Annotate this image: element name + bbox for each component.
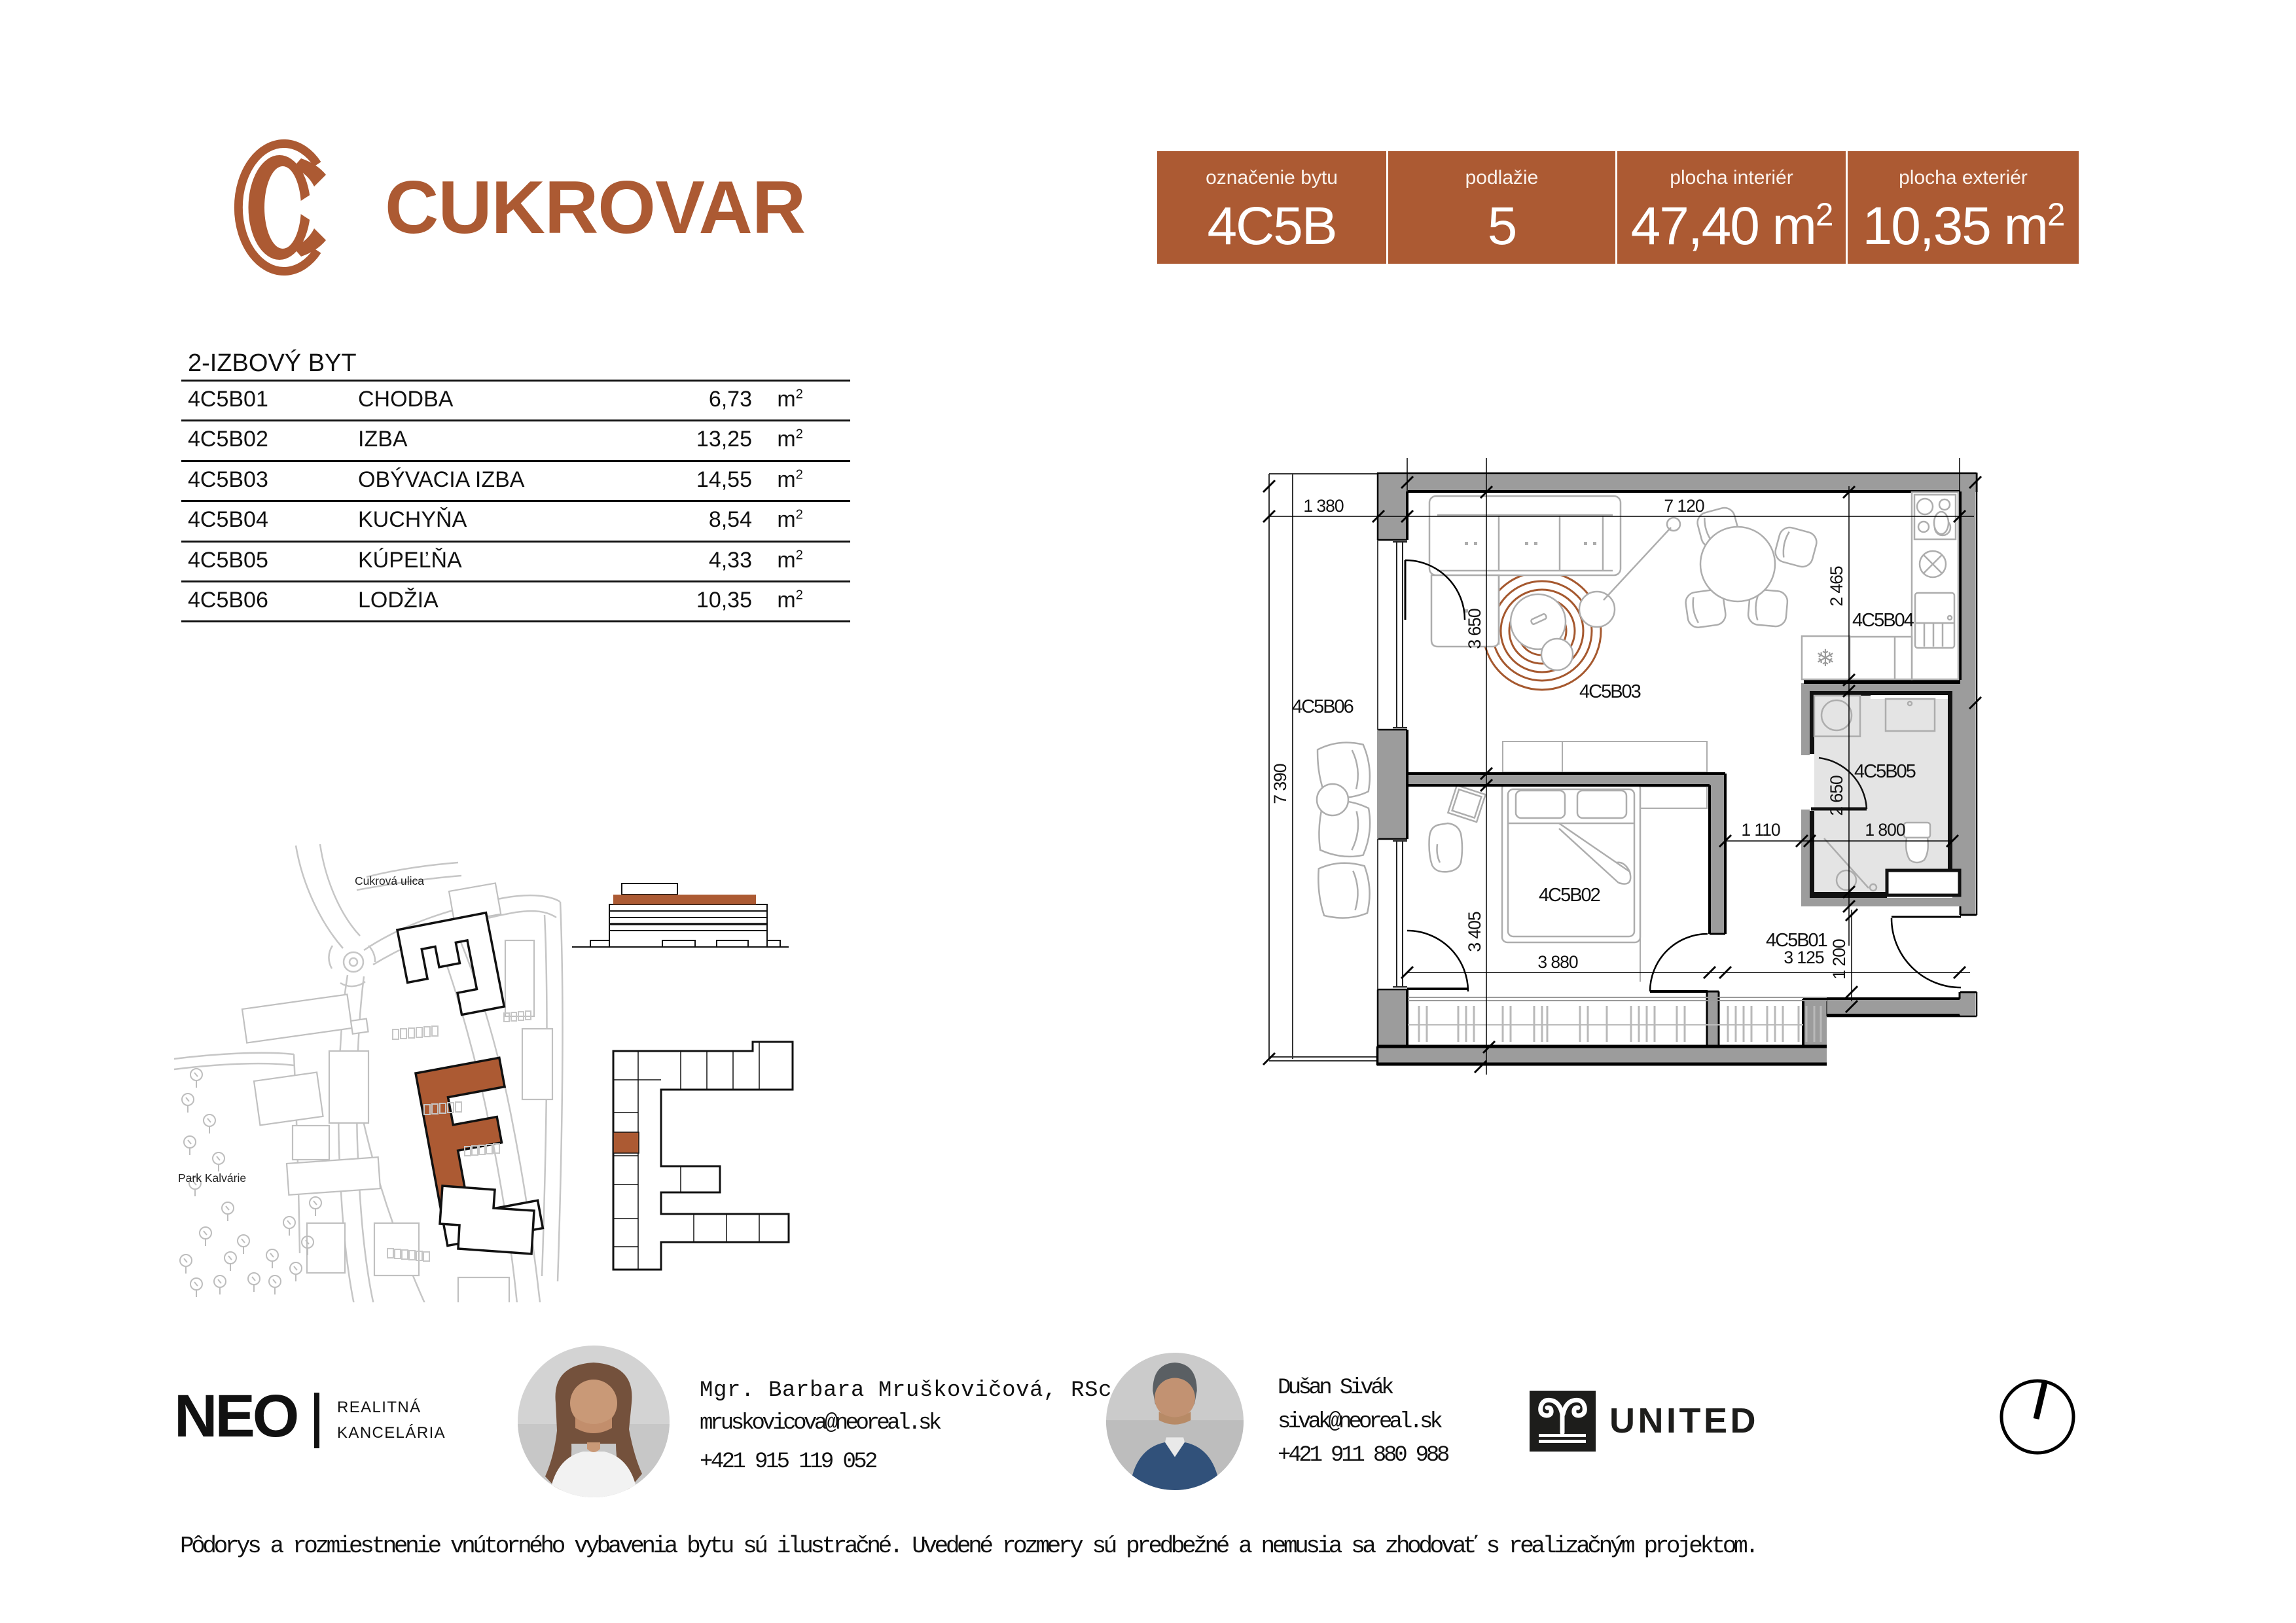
- svg-text:4C5B04: 4C5B04: [1852, 610, 1914, 631]
- svg-text:4C5B06: 4C5B06: [1292, 696, 1354, 717]
- svg-text:Park Kalvárie: Park Kalvárie: [178, 1171, 246, 1185]
- svg-text:❄: ❄: [1816, 645, 1835, 671]
- svg-text:1 200: 1 200: [1829, 939, 1849, 980]
- svg-text:3 880: 3 880: [1537, 952, 1578, 972]
- svg-text:7 390: 7 390: [1270, 764, 1290, 804]
- svg-text:4C5B01: 4C5B01: [1766, 930, 1827, 951]
- svg-text:Cukrová ulica: Cukrová ulica: [355, 874, 424, 887]
- svg-text:4C5B02: 4C5B02: [1539, 885, 1600, 906]
- svg-text:1 110: 1 110: [1741, 820, 1780, 840]
- svg-text:4C5B05: 4C5B05: [1854, 761, 1916, 782]
- svg-text:2 465: 2 465: [1827, 566, 1846, 607]
- svg-text:1 800: 1 800: [1865, 820, 1905, 840]
- svg-text:7 120: 7 120: [1664, 496, 1704, 516]
- svg-text:2 650: 2 650: [1827, 776, 1846, 816]
- svg-text:1 380: 1 380: [1303, 496, 1344, 516]
- svg-text:3 405: 3 405: [1465, 912, 1484, 952]
- svg-text:3 650: 3 650: [1465, 609, 1484, 649]
- svg-text:4C5B03: 4C5B03: [1579, 681, 1641, 702]
